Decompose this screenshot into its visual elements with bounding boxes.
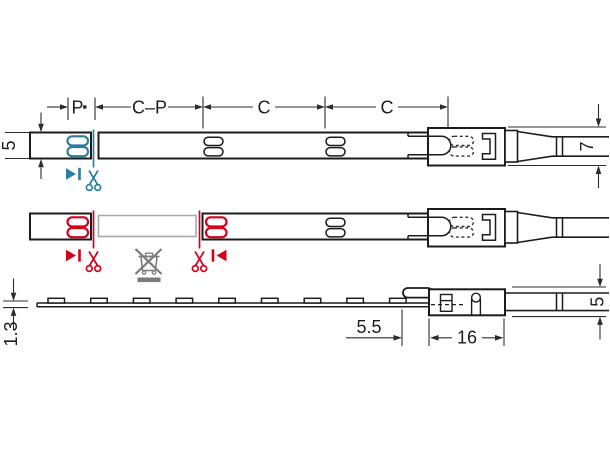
solder-pad bbox=[326, 229, 345, 237]
dim-label-strip-thickness: 1.3 bbox=[1, 321, 21, 346]
clamp bbox=[483, 134, 496, 160]
p-dimension-dot bbox=[83, 105, 87, 109]
strip-top-view-2 bbox=[30, 209, 609, 282]
hidden-contact bbox=[450, 228, 474, 237]
solder-pad bbox=[326, 148, 345, 156]
scissors-icon bbox=[192, 252, 206, 272]
scissors-icon bbox=[86, 252, 100, 272]
strip-top-view-1 bbox=[30, 128, 609, 190]
led-chip bbox=[48, 298, 65, 303]
arrow-bar-marker-icon bbox=[212, 249, 227, 261]
solder-pad bbox=[204, 148, 223, 156]
connector-side-view bbox=[403, 288, 505, 315]
dim-label-p: P bbox=[71, 98, 83, 118]
dimension-connector-height: 5 bbox=[512, 264, 608, 340]
solder-pad bbox=[206, 228, 227, 237]
solder-pad bbox=[68, 147, 89, 156]
solder-pad bbox=[68, 136, 89, 145]
led-strip-dimension-diagram: P C–P C C 5 bbox=[0, 0, 610, 450]
solder-pad bbox=[68, 228, 89, 237]
scissors-icon bbox=[86, 171, 100, 191]
solder-pad bbox=[326, 218, 345, 226]
technical-drawing: P C–P C C 5 bbox=[0, 0, 610, 450]
solder-pad bbox=[68, 217, 89, 226]
dim-label-strip-width: 5 bbox=[0, 140, 19, 150]
dimension-chain-top: P C–P C C bbox=[47, 97, 448, 129]
dim-label-connector-height: 5 bbox=[588, 297, 608, 307]
dimension-led-offset: 5.5 bbox=[346, 310, 402, 347]
arrow-bar-marker-icon bbox=[66, 249, 81, 261]
cable-stub bbox=[505, 212, 518, 244]
crossed-out-bin-icon bbox=[136, 249, 162, 282]
solder-pad bbox=[204, 137, 223, 145]
led-chip bbox=[262, 298, 279, 303]
strip-side-view bbox=[37, 288, 609, 315]
cable bbox=[518, 213, 610, 243]
solder-pad bbox=[326, 137, 345, 145]
dim-label-cable-width: 7 bbox=[577, 141, 597, 151]
dim-label-connector-length: 16 bbox=[457, 328, 477, 348]
clamp bbox=[483, 215, 496, 241]
strip-segment bbox=[203, 214, 429, 240]
dimension-connector-length: 16 bbox=[429, 319, 504, 348]
strip-segment bbox=[99, 133, 429, 159]
hidden-contact bbox=[450, 217, 474, 226]
removed-segment bbox=[99, 216, 197, 237]
solder-pad bbox=[206, 217, 227, 226]
led-chip bbox=[176, 298, 193, 303]
led-chip bbox=[91, 298, 108, 303]
led-chip bbox=[133, 298, 150, 303]
dim-label-c1: C bbox=[258, 98, 271, 118]
hidden-contact bbox=[450, 136, 474, 145]
dim-label-c2: C bbox=[381, 98, 394, 118]
led-chip bbox=[304, 298, 321, 303]
led-chip bbox=[390, 298, 407, 303]
led-chip bbox=[347, 298, 364, 303]
dim-label-led-offset: 5.5 bbox=[356, 317, 381, 337]
dim-label-c-p: C–P bbox=[132, 98, 167, 118]
cable-stub bbox=[505, 131, 518, 163]
hidden-contact bbox=[450, 147, 474, 156]
arrow-bar-marker-icon bbox=[66, 168, 81, 180]
led-chip bbox=[219, 298, 236, 303]
dimension-strip-thickness: 1.3 bbox=[1, 279, 28, 347]
